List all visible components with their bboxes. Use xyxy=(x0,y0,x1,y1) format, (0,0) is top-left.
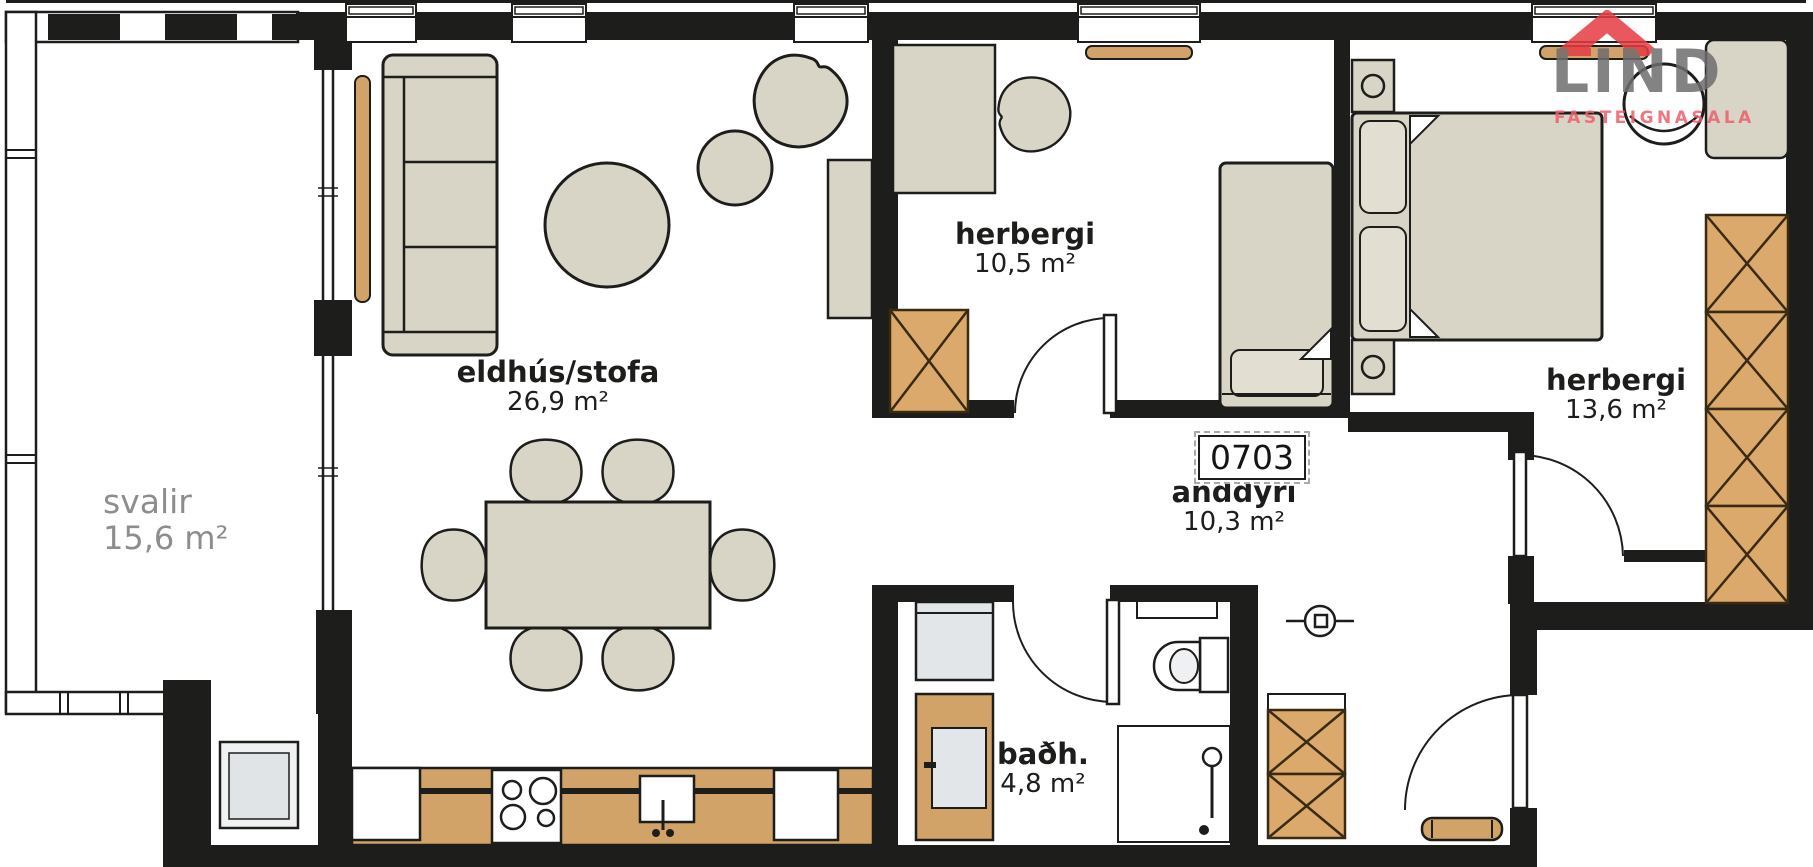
room-area: 4,8 m² xyxy=(997,770,1089,799)
room-label-herbergi-1: herbergi 10,5 m² xyxy=(955,218,1095,280)
bedroom2-door xyxy=(1514,452,1623,556)
shower xyxy=(1118,726,1230,842)
dining-set xyxy=(422,440,775,691)
room-area: 13,6 m² xyxy=(1546,396,1686,425)
ceiling-lamp-icon xyxy=(1286,606,1354,636)
dining-chair xyxy=(511,440,582,504)
room-name: herbergi xyxy=(955,218,1095,250)
washing-machine xyxy=(916,602,993,680)
room-label-svalir: svalir 15,6 m² xyxy=(103,484,228,557)
tv-cabinet xyxy=(828,160,872,318)
room-label-eldhus-stofa: eldhús/stofa 26,9 m² xyxy=(457,356,660,418)
wardrobe xyxy=(890,310,968,412)
room-area: 26,9 m² xyxy=(457,388,660,417)
appliance xyxy=(774,770,838,840)
dining-chair xyxy=(710,530,774,601)
hall-wardrobe xyxy=(1268,694,1345,838)
room-label-anddyri: anddyri 10,3 m² xyxy=(1172,476,1297,538)
fridge xyxy=(220,742,298,828)
dining-chair xyxy=(603,440,674,504)
agency-logo: LIND FASTEIGNASALA xyxy=(1551,4,1813,144)
stove xyxy=(492,770,561,843)
bathroom-door xyxy=(1013,600,1119,704)
room-area: 10,3 m² xyxy=(1172,508,1297,537)
room-name: eldhús/stofa xyxy=(457,356,660,388)
wardrobe xyxy=(1706,215,1788,603)
room-area: 15,6 m² xyxy=(103,521,228,557)
logo-name: LIND xyxy=(1551,42,1724,102)
floor-plan-drawing xyxy=(0,0,1813,867)
kitchen-counter xyxy=(352,768,873,845)
dining-table xyxy=(486,502,710,628)
room-area: 10,5 m² xyxy=(955,250,1095,279)
sink-vanity xyxy=(916,694,993,840)
dining-chair xyxy=(511,626,582,690)
entrance-door xyxy=(1405,695,1527,810)
logo-subtitle: FASTEIGNASALA xyxy=(1554,108,1755,128)
appliance xyxy=(352,768,420,840)
dining-chair xyxy=(422,530,486,601)
room-label-badherbergi: baðh. 4,8 m² xyxy=(997,738,1089,800)
doormat xyxy=(1422,818,1502,840)
sliding-door-panel xyxy=(355,76,370,302)
side-table xyxy=(698,131,772,205)
coffee-table xyxy=(545,163,669,287)
toilet xyxy=(1154,638,1228,692)
room-name: svalir xyxy=(103,484,228,521)
unit-number-box: 0703 xyxy=(1194,431,1310,484)
room-name: baðh. xyxy=(997,738,1089,770)
bathroom-shelf xyxy=(1137,601,1217,618)
desk-chair xyxy=(996,74,1074,154)
room-name: herbergi xyxy=(1546,364,1686,396)
floor-plan: svalir 15,6 m² eldhús/stofa 26,9 m² herb… xyxy=(0,0,1813,867)
dining-chair xyxy=(603,626,674,690)
double-bed xyxy=(1352,113,1602,340)
unit-number: 0703 xyxy=(1198,435,1306,480)
single-bed xyxy=(1220,163,1333,408)
sofa xyxy=(383,55,497,355)
bedroom1-door xyxy=(1015,315,1116,413)
balcony-railing xyxy=(6,12,298,714)
room-label-herbergi-2: herbergi 13,6 m² xyxy=(1546,364,1686,426)
desk xyxy=(893,45,995,193)
